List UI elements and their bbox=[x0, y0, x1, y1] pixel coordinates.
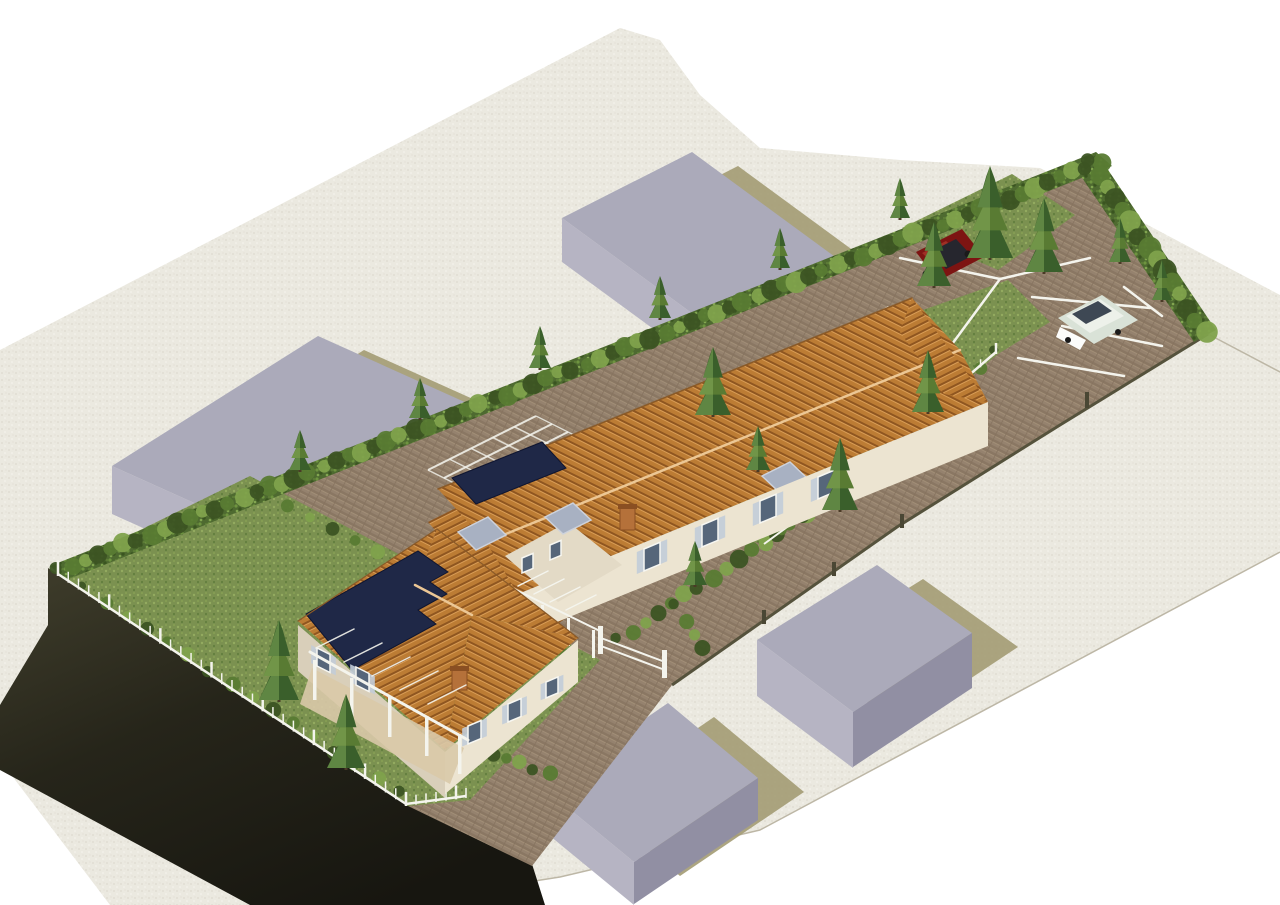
shrub-row-gate-blob bbox=[668, 599, 679, 610]
hedge-row-courtyard-blob bbox=[650, 605, 666, 621]
hedge-row-nw-blob bbox=[659, 325, 675, 341]
shrub-row-front-nw-blob bbox=[305, 513, 315, 523]
hedge-row-nw-blob bbox=[420, 419, 437, 436]
shrub-row-front-nw-blob bbox=[370, 545, 385, 560]
chimney-front bbox=[452, 668, 467, 690]
gate-post bbox=[598, 626, 603, 654]
boundary-post bbox=[1085, 392, 1089, 408]
hedge-row-nw-blob bbox=[639, 329, 660, 350]
hedge-row-nw-blob bbox=[220, 497, 234, 511]
shrub-row-front-nw-blob bbox=[350, 535, 361, 546]
hedge-row-courtyard-blob bbox=[626, 625, 641, 640]
shrub-row-front-nw-blob bbox=[255, 486, 264, 495]
shrub-row-front-nw-blob bbox=[281, 499, 294, 512]
chimney-wing-cap bbox=[618, 504, 637, 509]
hedge-row-nw-blob bbox=[815, 264, 828, 277]
hedge-row-nw-blob bbox=[391, 427, 407, 443]
van-wheel bbox=[1115, 329, 1121, 335]
hedge-row-courtyard-blob bbox=[675, 585, 692, 602]
shrub-row-front-nw-blob bbox=[326, 522, 340, 536]
shrub-row-house-south-blob bbox=[543, 766, 558, 781]
pergola-post bbox=[458, 734, 462, 774]
hedge-row-nw-blob bbox=[50, 562, 62, 574]
hedge-row-ne-blob bbox=[1196, 321, 1218, 343]
pergola-post bbox=[425, 716, 429, 756]
boundary-post bbox=[762, 610, 766, 624]
van-wheel bbox=[1065, 337, 1071, 343]
pergola-post bbox=[388, 697, 392, 737]
hedge-row-courtyard-blob bbox=[705, 570, 723, 588]
chimney-wing bbox=[620, 506, 635, 530]
shrub-row-gate-blob bbox=[694, 640, 710, 656]
hedge-row-nw-blob bbox=[732, 292, 751, 311]
hedge-row-ne-blob bbox=[1172, 286, 1186, 300]
hedge-row-nw-blob bbox=[561, 362, 579, 380]
pergola-post bbox=[313, 660, 317, 700]
terrace-pergola-post bbox=[592, 630, 595, 658]
hedge-row-nw-blob bbox=[469, 394, 488, 413]
shrub-row-house-south-blob bbox=[512, 755, 527, 770]
shrub-row-gate-blob bbox=[689, 629, 700, 640]
shrub-row-house-south-blob bbox=[527, 764, 538, 775]
shrub-row-gate-blob bbox=[679, 614, 694, 629]
gate-post bbox=[662, 650, 667, 678]
chimney-front-cap bbox=[450, 666, 469, 671]
hedge-row-nw-blob bbox=[902, 223, 923, 244]
hedge-row-nw-blob bbox=[537, 370, 553, 386]
hedge-row-nw-blob bbox=[128, 533, 143, 548]
scene-root bbox=[0, 28, 1280, 905]
hedge-row-ne-blob bbox=[1081, 153, 1095, 167]
site-plan-rendering bbox=[0, 0, 1280, 905]
boundary-post bbox=[832, 562, 836, 576]
hedge-row-courtyard-blob bbox=[640, 617, 651, 628]
boundary-post bbox=[900, 514, 904, 528]
site-plan-page bbox=[0, 0, 1280, 905]
shrub-row-house-south-blob bbox=[501, 753, 512, 764]
hedge-row-nw-blob bbox=[1039, 174, 1056, 191]
